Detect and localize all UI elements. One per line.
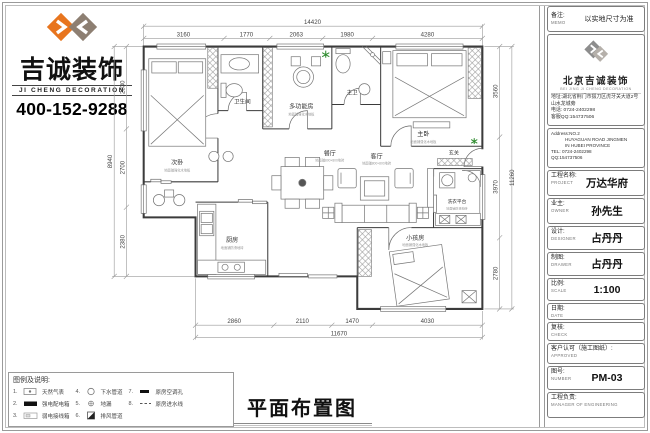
dim-top-total: 14420: [304, 19, 322, 26]
drawing-title: 平面布置图: [232, 392, 372, 421]
ac-hole-icon: [139, 387, 153, 396]
field-date: 日期: DATE: [547, 303, 645, 320]
legend-box: 图例及说明: 1. 天然气表 2. 强电配电箱 3. 弱电接线箱: [8, 372, 234, 427]
vent-duct-icon: [86, 411, 98, 420]
room-label-laundry: 洗衣平台: [448, 198, 467, 205]
legend-label: 强电配电箱: [42, 400, 70, 408]
dim-left-seg: 2380: [119, 234, 126, 248]
legend-item: 1. 天然气表: [13, 387, 70, 396]
room-label-master-bedroom: 主卧: [417, 130, 429, 138]
field-value: 万达华府: [572, 176, 642, 191]
field-scale: 比例: SCALE 1:100: [547, 278, 645, 301]
room-label-kitchen: 厨房: [226, 236, 238, 244]
lowvolt-box-icon: [23, 411, 39, 420]
room-note: 地面铺强化木地板: [164, 168, 191, 173]
company-qq-en: QQ:154737506: [551, 155, 641, 161]
title-underline: [232, 423, 372, 424]
field-label-cn: 客户认可（施工图纸）:: [551, 346, 641, 353]
dim-right-seg: 2780: [493, 266, 500, 280]
room-label-dining: 餐厅: [324, 149, 336, 157]
dim-right-total: 11260: [509, 169, 516, 186]
field-label-en: MANAGER OF ENGINEERING: [551, 402, 641, 407]
company-address-cn: 地址:湖北省荆门市掇刀区虎牙关大道2号山水龙城旁: [551, 95, 641, 108]
field-value: 占丹丹: [572, 231, 642, 246]
field-label-en: CHECK: [551, 332, 641, 337]
field-manager: 工程负责: MANAGER OF ENGINEERING: [547, 392, 645, 418]
room-note: 地面铺防滑地砖: [221, 245, 244, 250]
memo-value: 以实地尺寸为准: [577, 14, 641, 24]
dim-top-seg: 1980: [340, 31, 354, 38]
dim-left-seg: 2830: [119, 80, 126, 94]
room-note: 地面铺800×800地砖: [315, 157, 345, 162]
room-note: 地面铺防滑地砖: [446, 205, 467, 210]
field-label-en: APPROVED: [551, 353, 641, 358]
legend-label: 天然气表: [42, 388, 64, 396]
company-box: 北京吉诚装饰 BEI JING JI CHENG DECORATION 地址:湖…: [547, 34, 645, 126]
furniture: [149, 47, 481, 307]
field-value: 1:100: [572, 284, 642, 296]
company-tel-cn: 电话: 0724-2402298: [551, 108, 641, 115]
legend-label: 下水管道: [101, 388, 123, 396]
field-number: 图号: NUMBER PM-03: [547, 366, 645, 390]
dim-left-total: 8940: [107, 154, 114, 168]
drawing-sheet: 吉诚装饰 JI CHENG DECORATION 400-152-9288: [0, 0, 650, 433]
dim-top-seg: 3160: [177, 31, 191, 38]
floor-plan: 14420 3160 1770 2063 1980 4280 2860 2110…: [84, 14, 539, 372]
titleblock-separator: [539, 6, 545, 427]
field-approved: 客户认可（施工图纸）: APPROVED: [547, 343, 645, 364]
legend-label: 排风管道: [101, 412, 123, 420]
room-label-kids: 小孩房: [406, 234, 424, 242]
memo-label-cn: 备注:: [551, 13, 577, 20]
legend-no: 2.: [13, 401, 20, 407]
field-drawer: 制图: DRAWER 占丹丹: [547, 252, 645, 276]
dim-bottom-seg: 2110: [296, 318, 310, 325]
dim-top-seg: 4280: [421, 31, 435, 38]
field-owner: 业主: OWNER 孙先生: [547, 198, 645, 224]
dim-bottom-total: 11670: [331, 330, 348, 337]
field-value: 占丹丹: [572, 257, 642, 272]
room-label-bathroom: 卫生间: [234, 98, 251, 106]
room-label-secondary-bedroom: 次卧: [171, 159, 183, 167]
company-name-en: BEI JING JI CHENG DECORATION: [551, 87, 641, 91]
dim-right-seg: 3560: [493, 84, 500, 98]
company-qq-cn: 客服QQ:154737506: [551, 115, 641, 122]
legend-no: 4.: [76, 389, 83, 395]
room-label-living: 客厅: [370, 152, 382, 160]
legend-item: 3. 弱电接线箱: [13, 411, 70, 420]
legend-no: 7.: [129, 389, 136, 395]
dim-bottom-seg: 2860: [227, 318, 241, 325]
company-name-cn: 北京吉诚装饰: [551, 73, 641, 87]
legend-item: 5. 地漏: [76, 399, 123, 408]
gas-meter-icon: [23, 387, 39, 396]
legend-item: 4. 下水管道: [76, 387, 123, 396]
company-logo-icon: [581, 37, 611, 67]
legend-item: 6. 排风管道: [76, 411, 123, 420]
legend-no: 3.: [13, 413, 20, 419]
legend-no: 1.: [13, 389, 20, 395]
legend-item: 8. 原房进水线: [129, 399, 184, 408]
legend-label: 弱电接线箱: [42, 412, 70, 420]
legend-item: 7. 原房空调孔: [129, 387, 184, 396]
dim-bottom-seg: 4030: [421, 318, 435, 325]
field-value: 孙先生: [572, 204, 642, 219]
room-note: 地面铺强化木地板: [410, 139, 437, 144]
legend-label: 原房进水线: [156, 400, 184, 408]
address-en-box: Address:NO.2 HUYAGUAN ROAD JINGMEN IN HU…: [547, 128, 645, 168]
dim-bottom-seg: 1470: [345, 318, 359, 325]
field-check: 复核: CHECK: [547, 322, 645, 341]
title-underline-2: [232, 425, 372, 426]
room-note: 地面铺强化木地板: [402, 242, 429, 247]
titleblock: 备注: MEMO 以实地尺寸为准 北京吉诚装饰 BEI JING JI CHEN…: [547, 6, 645, 418]
legend-no: 8.: [129, 401, 136, 407]
legend-no: 5.: [76, 401, 83, 407]
water-line-icon: [139, 399, 153, 408]
legend-label: 地漏: [101, 400, 112, 408]
room-label-entry: 玄关: [449, 149, 459, 156]
dim-right-seg: 3970: [493, 180, 500, 194]
memo-box: 备注: MEMO 以实地尺寸为准: [547, 6, 645, 32]
drain-pipe-icon: [86, 387, 98, 396]
field-label-cn: 复核:: [551, 325, 641, 332]
field-label-en: DATE: [551, 313, 641, 318]
room-label-master-bath: 主卫: [347, 88, 359, 96]
legend-title: 图例及说明:: [13, 375, 229, 385]
field-project: 工程名称: PROJECT 万达华府: [547, 170, 645, 196]
field-label-cn: 工程负责:: [551, 395, 641, 402]
floor-drain-icon: [86, 399, 98, 408]
dim-left-seg: 2700: [119, 160, 126, 174]
field-designer: 设计: DESIGNER 占丹丹: [547, 226, 645, 250]
field-label-cn: 日期:: [551, 306, 641, 313]
field-value: PM-03: [572, 372, 642, 384]
power-box-icon: [23, 399, 39, 408]
room-label-multipurpose: 多功能房: [289, 103, 313, 111]
legend-no: 6.: [76, 413, 83, 419]
legend-item: 2. 强电配电箱: [13, 399, 70, 408]
drawing-title-block: 平面布置图: [232, 392, 372, 426]
legend-label: 原房空调孔: [156, 388, 184, 396]
room-note: 地面铺强化木地板: [288, 112, 315, 117]
room-note: 地面铺800×800地砖: [362, 161, 392, 166]
dim-top-seg: 2063: [289, 31, 303, 38]
dim-top-seg: 1770: [240, 31, 254, 38]
memo-label-en: MEMO: [551, 20, 577, 25]
